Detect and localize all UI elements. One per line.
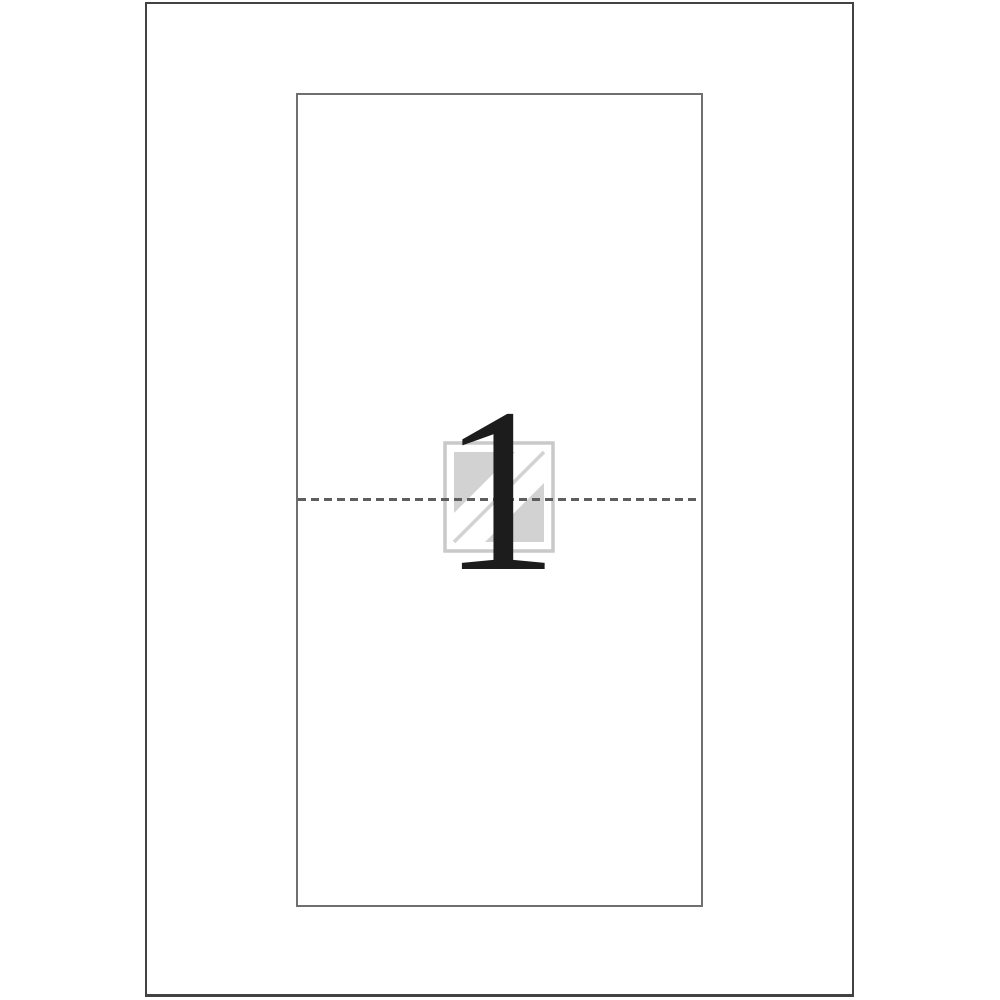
a4-page-outline: 1 [145,2,854,997]
label-number: 1 [441,373,559,608]
label-sheet-preview: 1 [0,0,1000,1000]
label-area: 1 [296,93,703,907]
